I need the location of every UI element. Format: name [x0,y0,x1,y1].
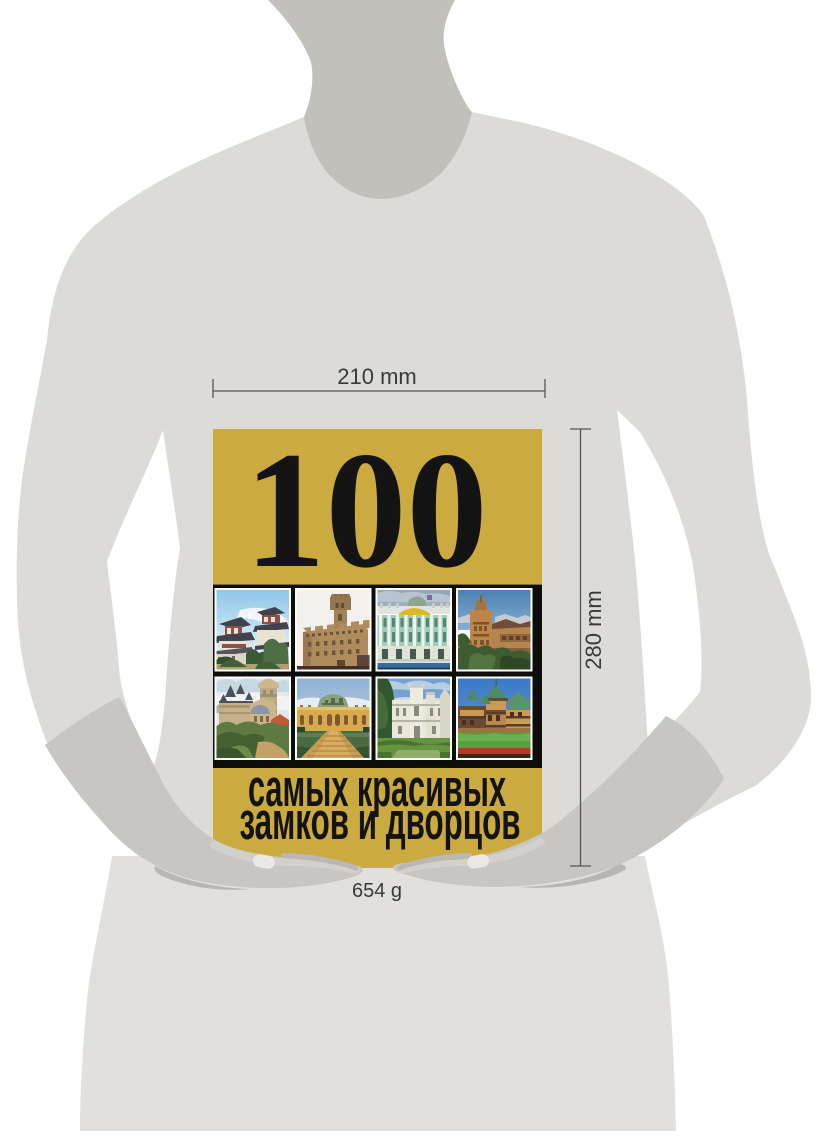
svg-text:100: 100 [245,418,488,603]
svg-text:280 mm: 280 mm [581,590,606,669]
svg-text:замков и дворцов: замков и дворцов [240,792,521,851]
svg-text:654 g: 654 g [352,880,402,902]
svg-text:210 mm: 210 mm [337,364,416,389]
